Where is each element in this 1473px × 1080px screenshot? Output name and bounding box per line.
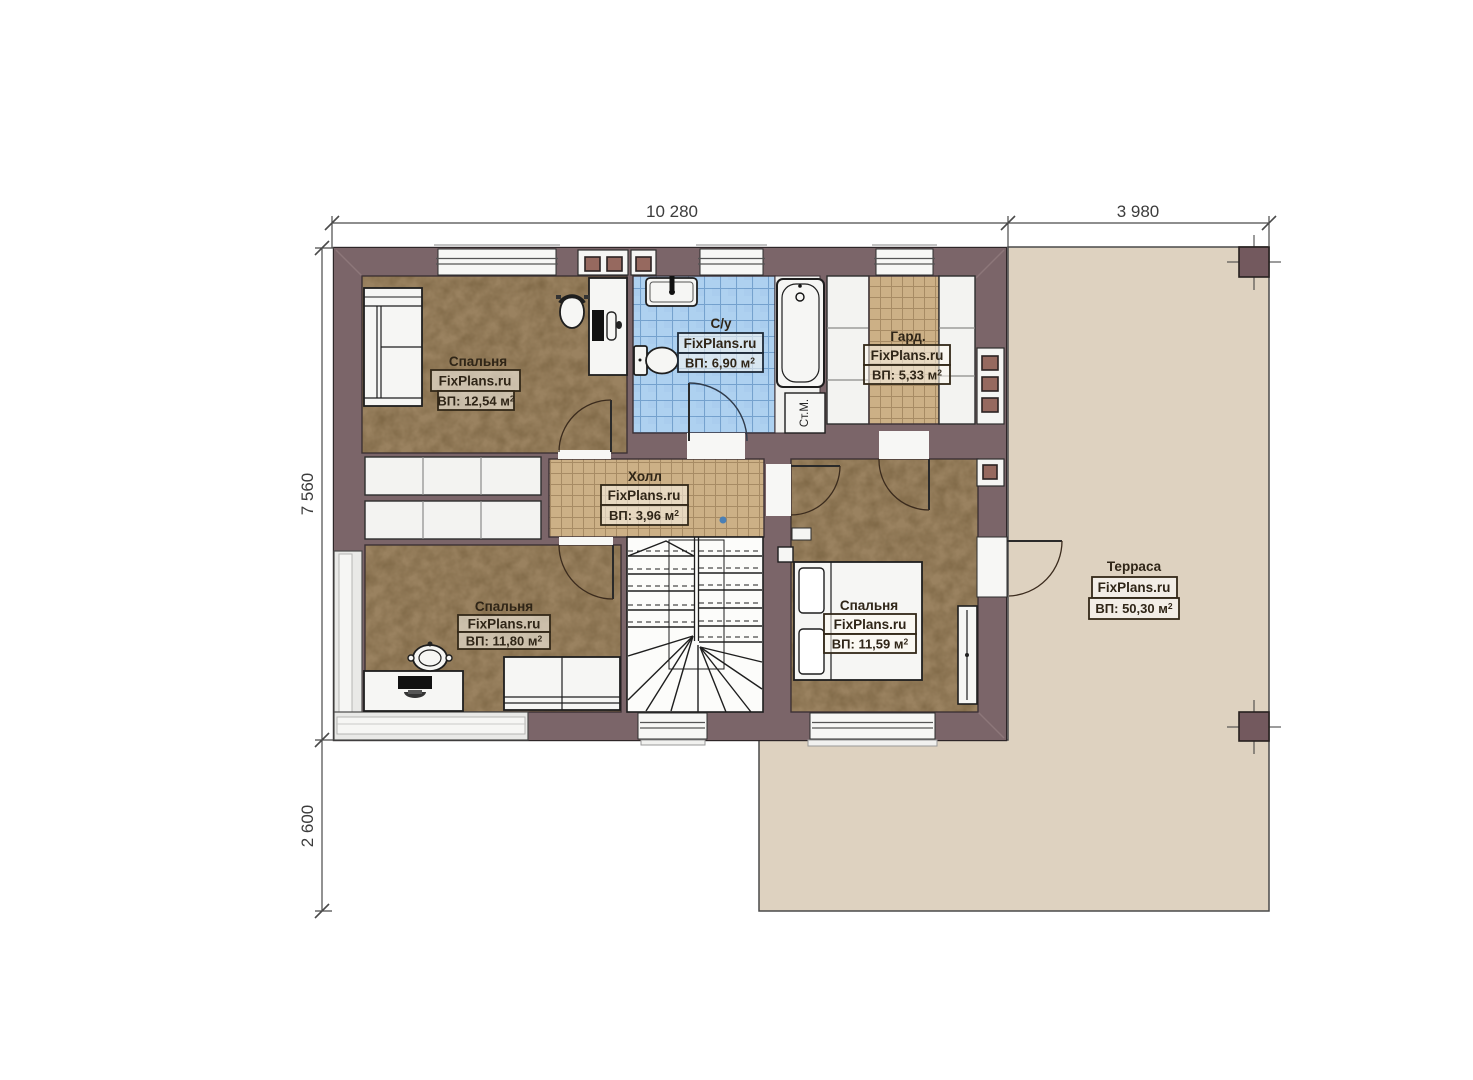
svg-text:FixPlans.ru: FixPlans.ru <box>871 348 944 363</box>
svg-text:Гард.: Гард. <box>890 329 925 344</box>
svg-text:ВП: 5,33 м2: ВП: 5,33 м2 <box>872 368 942 383</box>
svg-text:Холл: Холл <box>628 469 662 484</box>
svg-text:Ст.М.: Ст.М. <box>799 399 811 427</box>
svg-text:Спальня: Спальня <box>840 598 898 613</box>
svg-text:FixPlans.ru: FixPlans.ru <box>468 617 541 632</box>
svg-text:7 560: 7 560 <box>298 473 317 516</box>
svg-text:Спальня: Спальня <box>449 354 507 369</box>
svg-text:С/у: С/у <box>710 316 732 331</box>
svg-text:ВП: 12,54 м2: ВП: 12,54 м2 <box>437 394 514 409</box>
svg-text:3 980: 3 980 <box>1117 202 1160 221</box>
svg-text:ВП: 11,80 м2: ВП: 11,80 м2 <box>466 634 543 649</box>
svg-text:10 280: 10 280 <box>646 202 698 221</box>
svg-text:Спальня: Спальня <box>475 599 533 614</box>
svg-text:FixPlans.ru: FixPlans.ru <box>834 617 907 632</box>
svg-text:ВП: 11,59 м2: ВП: 11,59 м2 <box>832 637 909 652</box>
svg-text:ВП: 50,30 м2: ВП: 50,30 м2 <box>1095 601 1172 616</box>
svg-text:Терраса: Терраса <box>1107 559 1162 574</box>
svg-text:ВП: 3,96 м2: ВП: 3,96 м2 <box>609 508 679 523</box>
svg-text:FixPlans.ru: FixPlans.ru <box>1098 580 1171 595</box>
svg-text:FixPlans.ru: FixPlans.ru <box>684 336 757 351</box>
svg-text:FixPlans.ru: FixPlans.ru <box>439 374 512 389</box>
svg-text:FixPlans.ru: FixPlans.ru <box>608 488 681 503</box>
svg-text:ВП: 6,90 м2: ВП: 6,90 м2 <box>685 356 755 371</box>
svg-text:2 600: 2 600 <box>298 805 317 848</box>
